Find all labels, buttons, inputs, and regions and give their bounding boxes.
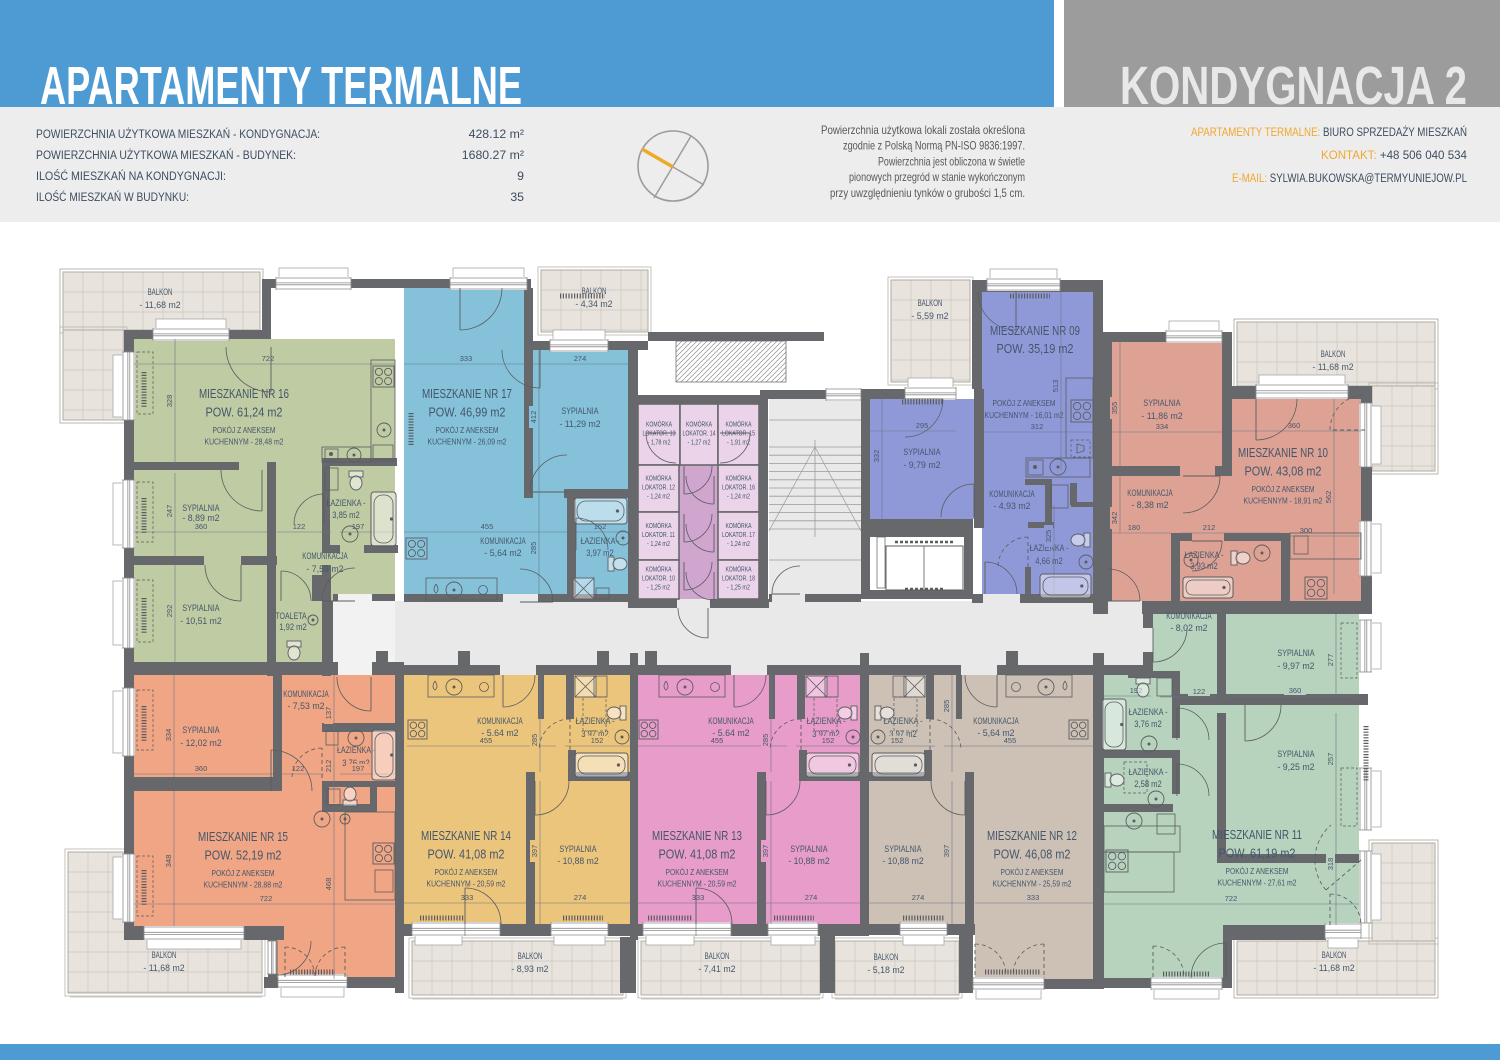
svg-text:LOKATOR. 18: LOKATOR. 18 [722, 576, 755, 583]
svg-text:KUCHENNYM - 27,61 m2: KUCHENNYM - 27,61 m2 [1218, 878, 1297, 888]
svg-text:- 12,02 m2: - 12,02 m2 [180, 738, 221, 749]
svg-text:- 5,64 m2: - 5,64 m2 [484, 548, 521, 559]
svg-text:SYPIALNIA: SYPIALNIA [182, 725, 220, 736]
svg-text:468: 468 [324, 878, 333, 891]
svg-text:274: 274 [574, 893, 587, 902]
svg-text:POKÓJ Z ANEKSEM: POKÓJ Z ANEKSEM [212, 868, 275, 878]
svg-text:SYPIALNIA: SYPIALNIA [182, 603, 220, 614]
svg-text:BALKON: BALKON [874, 952, 899, 963]
svg-text:KUCHENNYM - 18,91 m2: KUCHENNYM - 18,91 m2 [1244, 496, 1323, 506]
svg-text:- 8,93 m2: - 8,93 m2 [511, 964, 548, 975]
svg-text:257: 257 [1326, 753, 1335, 766]
svg-text:KONTAKT: +48 506 040 534: KONTAKT: +48 506 040 534 [1321, 148, 1467, 162]
svg-text:KOMUNIKACJA: KOMUNIKACJA [1166, 611, 1212, 622]
svg-text:722: 722 [262, 354, 275, 363]
svg-text:360: 360 [1289, 686, 1302, 695]
svg-text:BALKON: BALKON [152, 950, 177, 961]
svg-text:KOMUNIKACJA: KOMUNIKACJA [302, 551, 348, 562]
svg-text:3,85 m2: 3,85 m2 [332, 510, 359, 520]
svg-text:333: 333 [461, 893, 474, 902]
svg-text:LOKATOR. 10: LOKATOR. 10 [642, 576, 675, 583]
svg-text:277: 277 [1326, 654, 1335, 667]
svg-text:MIESZKANIE NR 11: MIESZKANIE NR 11 [1212, 828, 1302, 842]
svg-text:LOKATOR. 14: LOKATOR. 14 [683, 431, 716, 438]
svg-text:LOKATOR. 12: LOKATOR. 12 [642, 485, 675, 492]
svg-text:POW. 41,08 m2: POW. 41,08 m2 [659, 848, 736, 862]
svg-text:- 1,25 m2: - 1,25 m2 [727, 585, 750, 592]
svg-text:4,66 m2: 4,66 m2 [1035, 556, 1062, 566]
svg-text:- 1,25 m2: - 1,25 m2 [647, 585, 670, 592]
svg-text:BALKON: BALKON [1322, 950, 1347, 961]
svg-text:285: 285 [530, 734, 539, 747]
svg-text:SYPIALNIA: SYPIALNIA [1143, 398, 1181, 409]
svg-text:325: 325 [1044, 530, 1053, 543]
svg-text:POKÓJ Z ANEKSEM: POKÓJ Z ANEKSEM [1252, 484, 1315, 494]
svg-text:- 4,93 m2: - 4,93 m2 [993, 501, 1030, 512]
svg-text:KONDYGNACJA 2: KONDYGNACJA 2 [1120, 56, 1467, 116]
svg-text:- 1,24 m2: - 1,24 m2 [647, 541, 670, 548]
svg-text:- 11,68 m2: - 11,68 m2 [139, 300, 180, 311]
svg-text:APARTAMENTY TERMALNE: APARTAMENTY TERMALNE [40, 56, 522, 116]
svg-text:TOALETA -: TOALETA - [275, 611, 310, 621]
svg-text:KUCHENNYM - 28,48 m2: KUCHENNYM - 28,48 m2 [205, 437, 284, 447]
svg-text:SYPIALNIA: SYPIALNIA [559, 844, 597, 855]
svg-text:137: 137 [324, 707, 333, 720]
svg-text:- 8,02 m2: - 8,02 m2 [1170, 623, 1207, 634]
svg-text:SYPIALNIA: SYPIALNIA [903, 447, 941, 458]
svg-text:LOKATOR. 13: LOKATOR. 13 [643, 431, 676, 438]
svg-text:- 9,79 m2: - 9,79 m2 [903, 460, 940, 471]
svg-text:KUCHENNYM - 20,59 m2: KUCHENNYM - 20,59 m2 [427, 879, 506, 889]
svg-text:POWIERZCHNIA UŻYTKOWA MIESZKAŃ: POWIERZCHNIA UŻYTKOWA MIESZKAŃ - BUDYNEK… [36, 147, 296, 162]
svg-text:SYPIALNIA: SYPIALNIA [1277, 749, 1315, 760]
svg-text:295: 295 [916, 421, 929, 430]
svg-text:POW. 35,19 m2: POW. 35,19 m2 [997, 342, 1074, 356]
svg-text:POW. 43,08 m2: POW. 43,08 m2 [1245, 465, 1322, 479]
svg-text:POW. 46,99 m2: POW. 46,99 m2 [429, 406, 506, 420]
svg-text:KOMUNIKACJA: KOMUNIKACJA [989, 489, 1035, 500]
svg-text:LOKATOR. 17: LOKATOR. 17 [722, 532, 755, 539]
svg-text:152: 152 [822, 736, 835, 745]
svg-text:KOMUNIKACJA: KOMUNIKACJA [708, 716, 754, 727]
svg-text:- 11,29 m2: - 11,29 m2 [559, 419, 600, 430]
svg-text:BALKON: BALKON [518, 951, 543, 962]
svg-text:- 9,97 m2: - 9,97 m2 [1277, 661, 1314, 672]
svg-text:285: 285 [761, 734, 770, 747]
svg-text:397: 397 [530, 845, 539, 858]
svg-text:300: 300 [1300, 526, 1313, 535]
svg-text:332: 332 [872, 450, 881, 463]
svg-text:POKÓJ Z ANEKSEM: POKÓJ Z ANEKSEM [436, 425, 499, 435]
svg-text:SYPIALNIA: SYPIALNIA [884, 844, 922, 855]
svg-text:- 1,78 m2: - 1,78 m2 [648, 440, 671, 447]
svg-text:BALKON: BALKON [148, 287, 173, 298]
svg-text:- 1,24 m2: - 1,24 m2 [647, 494, 670, 501]
svg-text:- 4,34 m2: - 4,34 m2 [575, 299, 612, 310]
svg-text:- 8,38 m2: - 8,38 m2 [1131, 500, 1168, 511]
svg-text:ILOŚĆ MIESZKAŃ NA KONDYGNACJI:: ILOŚĆ MIESZKAŃ NA KONDYGNACJI: [36, 168, 226, 183]
svg-text:- 5,59 m2: - 5,59 m2 [911, 311, 948, 322]
svg-text:- 10,51 m2: - 10,51 m2 [180, 616, 221, 627]
svg-text:285: 285 [942, 700, 951, 713]
svg-text:152: 152 [591, 736, 604, 745]
svg-text:412: 412 [529, 411, 538, 424]
svg-text:KOMUNIKACJA: KOMUNIKACJA [283, 689, 329, 700]
svg-text:328: 328 [165, 395, 174, 408]
svg-text:722: 722 [1225, 894, 1238, 903]
svg-text:KUCHENNYM - 16,01 m2: KUCHENNYM - 16,01 m2 [985, 410, 1064, 420]
svg-text:455: 455 [480, 736, 493, 745]
svg-text:180: 180 [1128, 523, 1141, 532]
svg-text:SYPIALNIA: SYPIALNIA [790, 844, 828, 855]
svg-text:KOMÓRKA: KOMÓRKA [726, 521, 752, 530]
svg-text:- 10,88 m2: - 10,88 m2 [882, 856, 923, 867]
svg-text:MIESZKANIE NR 16: MIESZKANIE NR 16 [199, 387, 289, 401]
svg-text:POW. 41,08 m2: POW. 41,08 m2 [428, 848, 505, 862]
svg-text:POKÓJ Z ANEKSEM: POKÓJ Z ANEKSEM [993, 398, 1056, 408]
svg-text:152: 152 [891, 736, 904, 745]
svg-text:POW. 61,19 m2: POW. 61,19 m2 [1219, 847, 1296, 861]
svg-text:513: 513 [1051, 380, 1060, 393]
svg-text:318: 318 [1326, 858, 1335, 871]
svg-text:- 11,68 m2: - 11,68 m2 [1312, 362, 1353, 373]
svg-text:- 5,18 m2: - 5,18 m2 [867, 965, 904, 976]
svg-text:274: 274 [912, 893, 925, 902]
svg-text:342: 342 [1110, 512, 1119, 525]
svg-text:KUCHENNYM - 20,59 m2: KUCHENNYM - 20,59 m2 [658, 879, 737, 889]
svg-text:ŁAZIENKA -: ŁAZIENKA - [580, 536, 619, 546]
svg-text:MIESZKANIE NR 14: MIESZKANIE NR 14 [421, 829, 511, 843]
svg-text:428.12 m²: 428.12 m² [469, 127, 524, 141]
svg-text:397: 397 [942, 845, 951, 858]
svg-text:KOMÓRKA: KOMÓRKA [726, 420, 752, 429]
svg-text:ŁAZIENKA -: ŁAZIENKA - [1184, 550, 1223, 560]
svg-text:KOMUNIKACJA: KOMUNIKACJA [1127, 488, 1173, 499]
svg-text:POWIERZCHNIA UŻYTKOWA MIESZKAŃ: POWIERZCHNIA UŻYTKOWA MIESZKAŃ - KONDYGN… [36, 126, 320, 141]
svg-text:zgodnie z Polską Normą PN-ISO: zgodnie z Polską Normą PN-ISO 9836:1997. [843, 139, 1025, 153]
svg-text:ŁAZIENKA -: ŁAZIENKA - [326, 498, 365, 508]
svg-text:- 1,91 m2: - 1,91 m2 [727, 440, 750, 447]
svg-text:MIESZKANIE NR 13: MIESZKANIE NR 13 [652, 829, 742, 843]
svg-text:E-MAIL: SYLWIA.BUKOWSKA@TERMYU: E-MAIL: SYLWIA.BUKOWSKA@TERMYUNIEJOW.PL [1232, 171, 1467, 185]
svg-text:MIESZKANIE NR 09: MIESZKANIE NR 09 [990, 324, 1080, 338]
svg-text:Powierzchnia użytkowa lokali z: Powierzchnia użytkowa lokali została okr… [821, 123, 1025, 137]
svg-text:562: 562 [1324, 491, 1333, 504]
svg-text:ŁAZIENKA -: ŁAZIENKA - [1128, 767, 1167, 777]
svg-text:MIESZKANIE NR 15: MIESZKANIE NR 15 [198, 830, 288, 844]
svg-text:- 7,41 m2: - 7,41 m2 [698, 964, 735, 975]
svg-text:POKÓJ Z ANEKSEM: POKÓJ Z ANEKSEM [1001, 867, 1064, 877]
svg-text:POW. 61,24 m2: POW. 61,24 m2 [206, 406, 283, 420]
svg-text:ILOŚĆ MIESZKAŃ W BUDYNKU:: ILOŚĆ MIESZKAŃ W BUDYNKU: [36, 189, 189, 204]
svg-text:- 9,25 m2: - 9,25 m2 [1277, 762, 1314, 773]
svg-text:197: 197 [352, 764, 365, 773]
svg-text:LOKATOR. 16: LOKATOR. 16 [722, 485, 755, 492]
svg-text:212: 212 [1203, 523, 1216, 532]
svg-text:ŁAZIENKA -: ŁAZIENKA - [337, 745, 375, 755]
svg-text:35: 35 [510, 190, 524, 204]
svg-text:KOMÓRKA: KOMÓRKA [646, 565, 672, 574]
svg-text:MIESZKANIE NR 17: MIESZKANIE NR 17 [422, 387, 512, 401]
svg-text:KOMÓRKA: KOMÓRKA [646, 420, 672, 429]
svg-text:2,58 m2: 2,58 m2 [1134, 779, 1161, 789]
svg-text:BALKON: BALKON [705, 951, 730, 962]
svg-text:KOMUNIKACJA: KOMUNIKACJA [480, 536, 526, 547]
svg-text:- 10,88 m2: - 10,88 m2 [788, 856, 829, 867]
svg-text:POKÓJ Z ANEKSEM: POKÓJ Z ANEKSEM [213, 425, 276, 435]
svg-text:360: 360 [195, 522, 208, 531]
svg-text:KUCHENNYM - 26,09 m2: KUCHENNYM - 26,09 m2 [428, 437, 507, 447]
svg-text:312: 312 [1031, 422, 1044, 431]
svg-text:KOMUNIKACJA: KOMUNIKACJA [477, 716, 523, 727]
svg-text:Powierzchnia jest obliczona w: Powierzchnia jest obliczona w świetle [878, 154, 1025, 168]
svg-text:- 11,68 m2: - 11,68 m2 [143, 963, 184, 974]
svg-text:333: 333 [1027, 893, 1040, 902]
svg-text:KOMÓRKA: KOMÓRKA [686, 420, 712, 429]
svg-text:355: 355 [1110, 402, 1119, 415]
svg-text:POKÓJ Z ANEKSEM: POKÓJ Z ANEKSEM [1226, 866, 1289, 876]
svg-text:285: 285 [529, 542, 538, 555]
svg-text:BALKON: BALKON [918, 298, 943, 309]
svg-text:348: 348 [164, 855, 173, 868]
svg-text:333: 333 [460, 354, 473, 363]
svg-text:- 10,88 m2: - 10,88 m2 [557, 856, 598, 867]
svg-text:- 1,27 m2: - 1,27 m2 [688, 440, 711, 447]
svg-text:722: 722 [260, 894, 273, 903]
svg-text:3,76 m2: 3,76 m2 [1134, 719, 1161, 729]
svg-text:KOMÓRKA: KOMÓRKA [726, 565, 752, 574]
svg-text:SYPIALNIA: SYPIALNIA [1277, 648, 1315, 659]
svg-text:274: 274 [574, 354, 587, 363]
svg-text:KOMÓRKA: KOMÓRKA [646, 521, 672, 530]
svg-text:122: 122 [293, 522, 306, 531]
svg-text:APARTAMENTY TERMALNE: BIURO SP: APARTAMENTY TERMALNE: BIURO SPRZEDAŻY MI… [1191, 124, 1467, 139]
svg-text:333: 333 [692, 893, 705, 902]
svg-text:1,92 m2: 1,92 m2 [279, 622, 306, 632]
svg-text:KOMÓRKA: KOMÓRKA [646, 474, 672, 483]
svg-text:- 11,68 m2: - 11,68 m2 [1313, 963, 1354, 974]
svg-text:292: 292 [165, 605, 174, 618]
svg-text:122: 122 [1193, 687, 1206, 696]
svg-text:360: 360 [195, 764, 208, 773]
svg-text:przy uwzględnieniu tynków o gr: przy uwzględnieniu tynków o grubości 1,5… [830, 186, 1025, 200]
svg-text:KOMÓRKA: KOMÓRKA [726, 474, 752, 483]
svg-text:MIESZKANIE NR 10: MIESZKANIE NR 10 [1238, 446, 1328, 460]
svg-text:KUCHENNYM - 25,59 m2: KUCHENNYM - 25,59 m2 [993, 879, 1072, 889]
svg-text:334: 334 [1156, 422, 1169, 431]
svg-text:MIESZKANIE NR 12: MIESZKANIE NR 12 [987, 829, 1077, 843]
svg-text:POW. 46,08 m2: POW. 46,08 m2 [994, 848, 1071, 862]
svg-text:- 11,86 m2: - 11,86 m2 [1141, 411, 1182, 422]
svg-text:POKÓJ Z ANEKSEM: POKÓJ Z ANEKSEM [435, 867, 498, 877]
svg-text:POW. 52,19 m2: POW. 52,19 m2 [205, 849, 282, 863]
svg-text:ŁAZIENKA -: ŁAZIENKA - [1128, 707, 1167, 717]
svg-text:- 1,24 m2: - 1,24 m2 [727, 541, 750, 548]
svg-text:KOMUNIKACJA: KOMUNIKACJA [973, 716, 1019, 727]
svg-text:SYPIALNIA: SYPIALNIA [561, 406, 599, 417]
svg-text:BALKON: BALKON [1321, 349, 1346, 360]
svg-text:POKÓJ Z ANEKSEM: POKÓJ Z ANEKSEM [666, 867, 729, 877]
svg-text:pionowych przegród w stanie wy: pionowych przegród w stanie wykończonym [849, 170, 1025, 184]
svg-text:334: 334 [164, 729, 173, 742]
svg-text:274: 274 [805, 893, 818, 902]
svg-text:9: 9 [517, 169, 524, 183]
svg-text:455: 455 [1004, 736, 1017, 745]
svg-text:- 7,59 m2: - 7,59 m2 [306, 564, 343, 575]
svg-text:455: 455 [711, 736, 724, 745]
svg-text:1680.27 m²: 1680.27 m² [462, 148, 524, 162]
svg-text:3,97 m2: 3,97 m2 [586, 548, 613, 558]
svg-text:247: 247 [165, 505, 174, 518]
svg-text:KUCHENNYM - 28,88 m2: KUCHENNYM - 28,88 m2 [204, 880, 283, 890]
svg-text:212: 212 [324, 760, 333, 773]
svg-text:- 7,53 m2: - 7,53 m2 [287, 701, 324, 712]
svg-text:397: 397 [761, 845, 770, 858]
svg-text:455: 455 [481, 522, 494, 531]
svg-text:LOKATOR. 11: LOKATOR. 11 [642, 532, 675, 539]
svg-text:- 1,24 m2: - 1,24 m2 [727, 494, 750, 501]
